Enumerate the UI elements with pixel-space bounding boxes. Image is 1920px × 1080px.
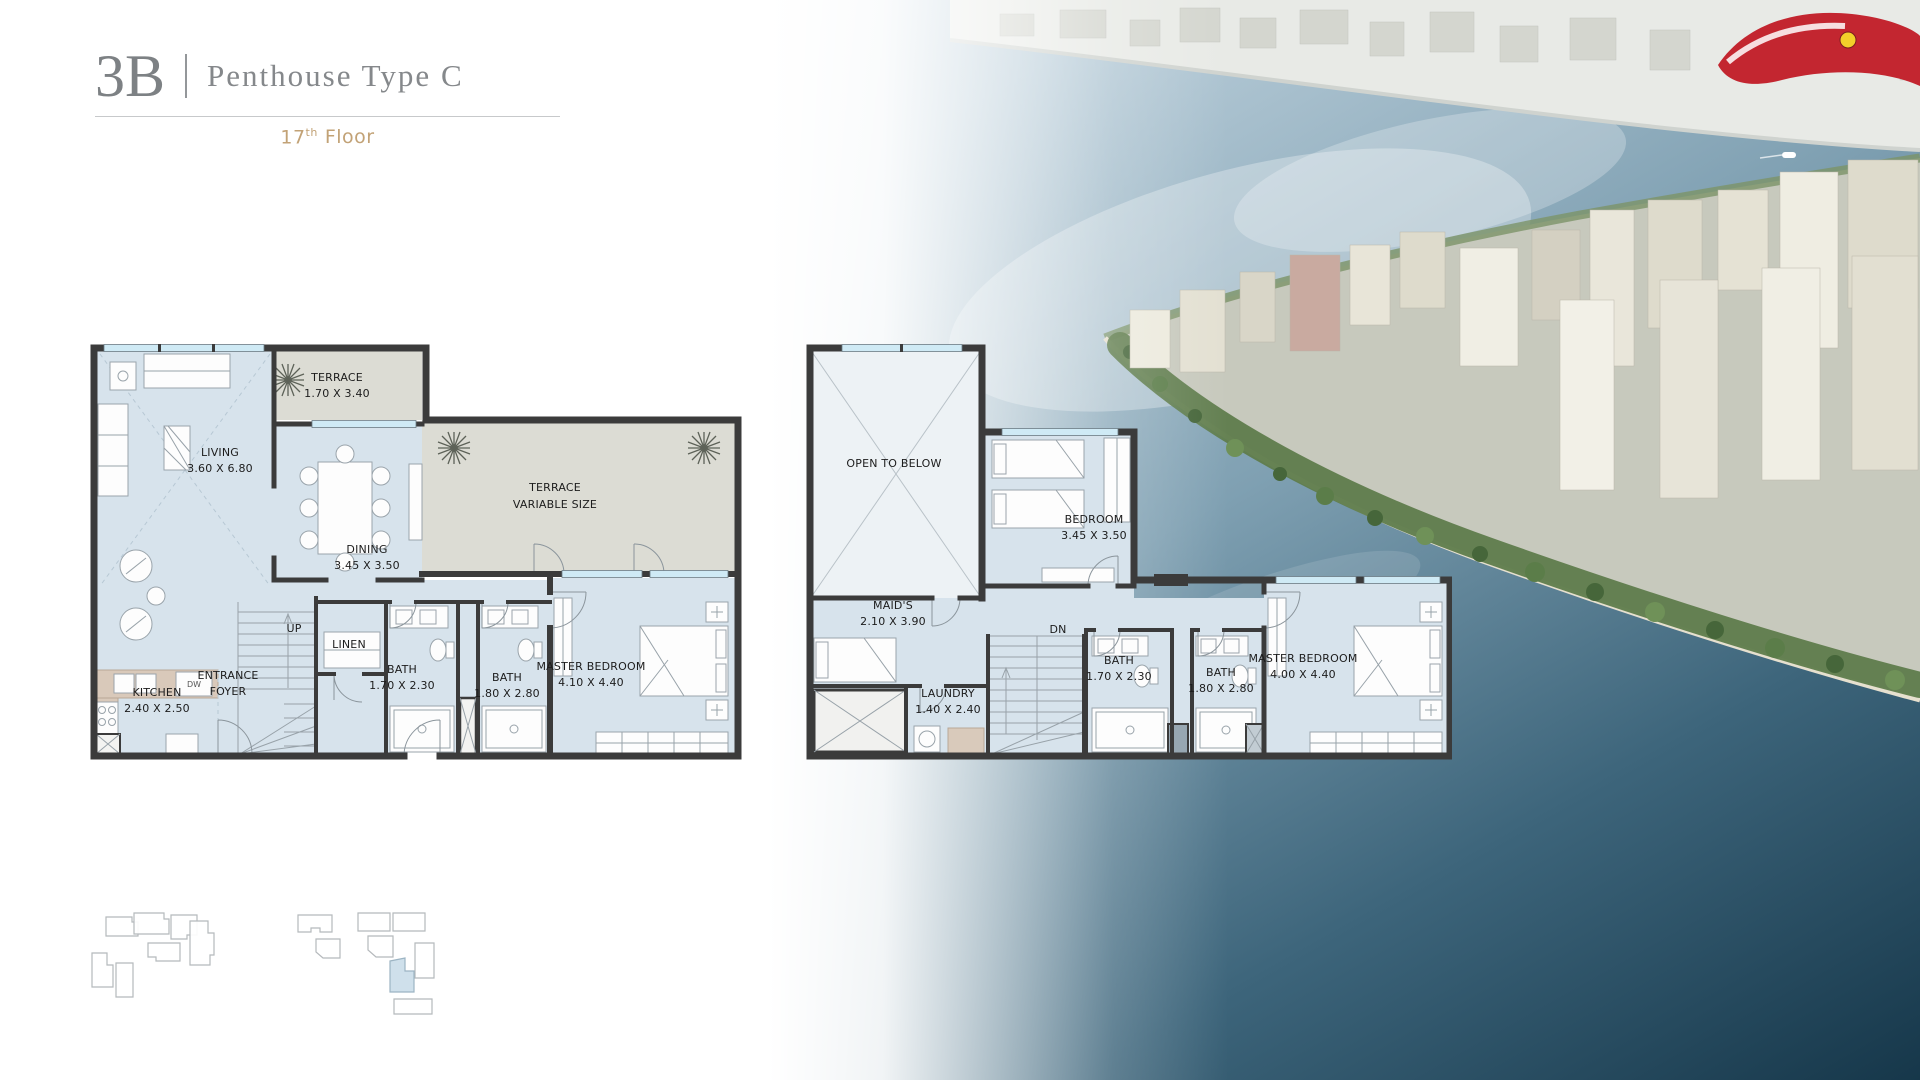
plant-icon <box>272 364 304 396</box>
terrace-large-dims: VARIABLE SIZE <box>513 498 597 511</box>
lower-floor-plan: DW <box>88 340 742 766</box>
bedroom-label: BEDROOM <box>1065 513 1124 526</box>
maids-label: MAID'S <box>873 599 913 612</box>
bed <box>640 626 728 696</box>
stairs-up-label: UP <box>286 622 301 635</box>
page-title: Penthouse Type C <box>207 58 464 94</box>
bath-small-dims-lower: 1.70 X 2.30 <box>369 679 435 692</box>
bath-large-label-upper: BATH <box>1206 666 1236 679</box>
terrace-large-label: TERRACE <box>528 481 581 494</box>
laundry-dims: 1.40 X 2.40 <box>915 703 981 716</box>
sideboard <box>409 464 422 540</box>
laundry-label: LAUNDRY <box>921 687 975 700</box>
key-plan-site-a <box>92 913 214 997</box>
toilet <box>430 639 446 661</box>
master-bedroom-label-lower: MASTER BEDROOM <box>536 660 645 673</box>
dining-table <box>318 462 372 554</box>
bath-large-dims-lower: 1.80 X 2.80 <box>474 687 540 700</box>
floor-word: Floor <box>325 126 375 148</box>
maids-dims: 2.10 X 3.90 <box>860 615 926 628</box>
bath-large-dims-upper: 1.80 X 2.80 <box>1188 682 1254 695</box>
dining-dims: 3.45 X 3.50 <box>334 559 400 572</box>
floor-number: 17 <box>280 126 305 148</box>
title-row: 3B Penthouse Type C <box>95 46 565 106</box>
bed <box>1354 626 1442 696</box>
bath-small-label-upper: BATH <box>1104 654 1134 667</box>
master-bedroom-label-upper: MASTER BEDROOM <box>1248 652 1357 665</box>
stairs-down-label: DN <box>1049 623 1066 636</box>
kitchen-label: KITCHEN <box>132 686 181 699</box>
entrance-foyer-label-1: ENTRANCE <box>197 669 258 682</box>
floor-ordinal: th <box>306 126 318 139</box>
master-bedroom-dims-lower: 4.10 X 4.40 <box>558 676 624 689</box>
bath-large-label-lower: BATH <box>492 671 522 684</box>
living-label: LIVING <box>201 446 239 459</box>
fridge <box>166 734 198 754</box>
dining-label: DINING <box>346 543 387 556</box>
plant-icon <box>688 432 720 464</box>
living-dims: 3.60 X 6.80 <box>187 462 253 475</box>
title-divider <box>185 54 187 98</box>
side-table <box>147 587 165 605</box>
laundry-fixtures <box>914 726 984 754</box>
washing-machine <box>914 726 940 752</box>
plant-icon <box>438 432 470 464</box>
master-bedroom-dims-upper: 4.00 X 4.40 <box>1270 668 1336 681</box>
title-block: 3B Penthouse Type C 17thFloor <box>95 46 565 148</box>
shower <box>390 706 454 752</box>
linen-label: LINEN <box>332 638 366 651</box>
key-plan-unit-highlight <box>390 958 414 992</box>
brochure-page: 3B Penthouse Type C 17thFloor <box>0 0 1920 1080</box>
maids-furniture <box>814 638 906 752</box>
upper-floor-plan: OPEN TO BELOW BEDROOM 3.45 X 3.50 MAID'S… <box>802 340 1452 766</box>
kitchen-dims: 2.40 X 2.50 <box>124 702 190 715</box>
floor-label: 17thFloor <box>95 126 560 148</box>
terrace-small-dims: 1.70 X 3.40 <box>304 387 370 400</box>
dresser <box>1042 568 1114 582</box>
terrace-small-label: TERRACE <box>310 371 363 384</box>
shower <box>1092 708 1168 752</box>
title-underline <box>95 116 560 117</box>
bath-small-label-lower: BATH <box>387 663 417 676</box>
entrance-foyer-label-2: FOYER <box>210 685 247 698</box>
bedroom-dims: 3.45 X 3.50 <box>1061 529 1127 542</box>
unit-label: 3B <box>95 46 165 106</box>
shower <box>482 706 546 752</box>
toilet <box>518 639 534 661</box>
key-plan-site-b <box>298 913 434 1014</box>
key-plan <box>90 903 470 1035</box>
open-to-below-label: OPEN TO BELOW <box>846 457 941 470</box>
bath-small-dims-upper: 1.70 X 2.30 <box>1086 670 1152 683</box>
